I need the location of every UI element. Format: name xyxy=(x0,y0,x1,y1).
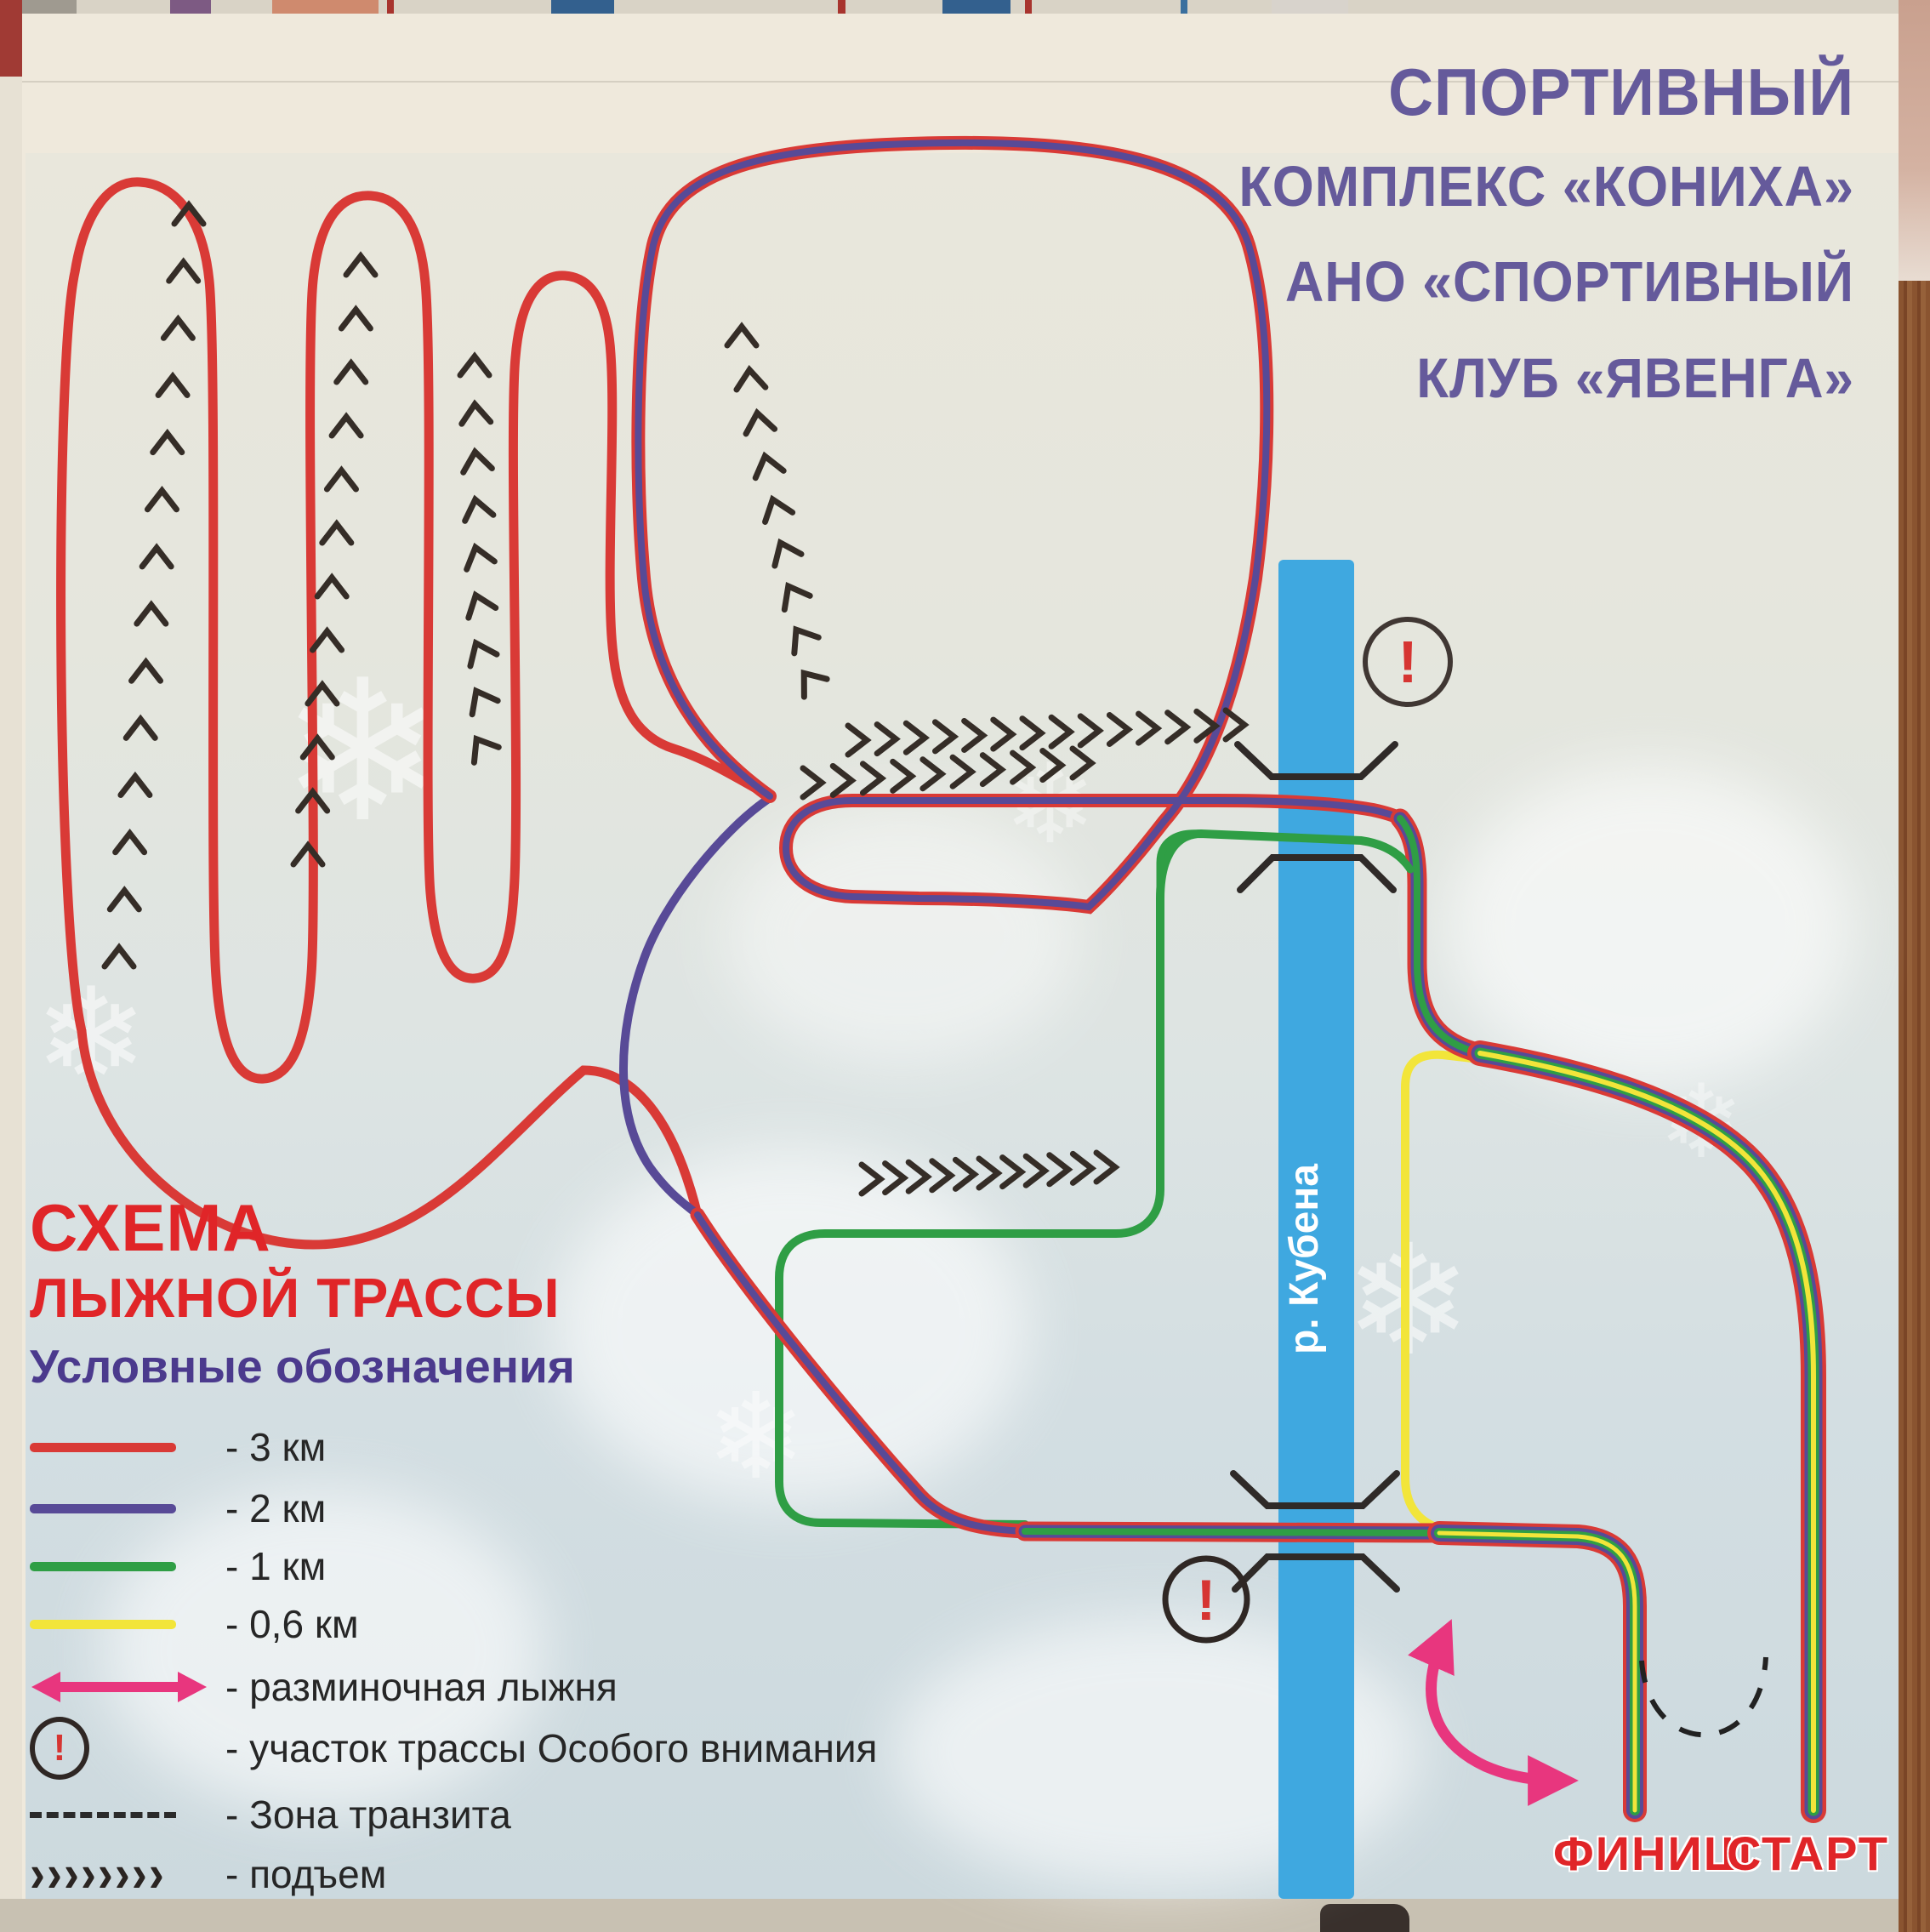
legend-item-attention: ! - участок трассы Особого внимания xyxy=(30,1720,1093,1776)
legend-subtitle: Условные обозначения xyxy=(30,1339,575,1393)
trail-line-icon xyxy=(30,1504,225,1513)
legend-item-2km: - 2 км xyxy=(30,1480,1093,1536)
legend-label: - 2 км xyxy=(225,1485,326,1531)
climb-chevron xyxy=(110,891,139,909)
warning-circle-icon: ! xyxy=(30,1717,225,1780)
climb-chevron xyxy=(1073,749,1091,778)
transit-zone-dashes xyxy=(1642,1657,1766,1735)
climb-chevron xyxy=(784,622,818,653)
legend-item-transit: - Зона транзита xyxy=(30,1787,1093,1843)
climb-chevron xyxy=(1226,710,1244,739)
climb-chevron xyxy=(461,450,492,473)
trail-line-icon xyxy=(30,1562,225,1571)
climb-chevron xyxy=(147,491,176,510)
climb-chevron xyxy=(848,726,867,755)
climb-chevron xyxy=(727,327,756,345)
climb-chevron xyxy=(979,1159,998,1188)
climb-chevron xyxy=(153,434,182,453)
climb-chevron xyxy=(877,725,896,754)
climb-chevron xyxy=(293,846,322,864)
warning-spot-lower: ! xyxy=(1165,1559,1247,1640)
legend-item-1km: - 1 км xyxy=(30,1538,1093,1594)
climb-chevron xyxy=(460,403,490,424)
climb-chevron xyxy=(116,834,145,852)
climb-chevron xyxy=(1096,1153,1115,1182)
climb-chevron xyxy=(1022,719,1041,748)
scheme-title-line1: СХЕМА xyxy=(30,1189,271,1267)
legend-label: - Зона транзита xyxy=(225,1792,511,1838)
legend-item-3km: - 3 км xyxy=(30,1419,1093,1475)
climb-chevron xyxy=(317,578,346,596)
climb-chevron xyxy=(833,766,851,795)
climb-chevron xyxy=(1051,717,1070,746)
legend-label: - 1 км xyxy=(225,1543,326,1589)
trail-2km-diagonal xyxy=(623,800,767,1215)
club-title-line: КЛУБ «ЯВЕНГА» xyxy=(1055,330,1854,425)
climb-chevron xyxy=(132,662,161,681)
legend-item-climb: ›››››››› - подъем xyxy=(30,1846,1093,1902)
club-title-line: АНО «СПОРТИВНЫЙ xyxy=(1055,235,1854,330)
climb-chevron xyxy=(1109,715,1128,744)
climb-chevron xyxy=(935,722,954,751)
climb-chevron xyxy=(932,1161,951,1190)
chevrons-icon: ›››››››› xyxy=(30,1848,225,1901)
climb-chevron xyxy=(463,637,497,666)
ski-trail-map-poster-photo: ❄ ❄ ❄ ❄ ❄ ❄ р. Кубена xyxy=(0,0,1930,1932)
climb-chevron xyxy=(803,768,822,797)
climb-chevron xyxy=(169,262,198,281)
climb-chevron xyxy=(462,544,495,570)
climb-chevron xyxy=(313,631,342,650)
climb-chevron xyxy=(322,524,351,543)
trail-right-bundle xyxy=(1400,818,1480,1053)
climb-chevron xyxy=(953,757,971,786)
river-label: р. Кубена xyxy=(1282,1164,1327,1354)
warning-spot-upper: ! xyxy=(1365,619,1450,704)
legend-label: - участок трассы Особого внимания xyxy=(225,1725,877,1771)
trail-3km-finger-loops xyxy=(61,182,770,1079)
climb-chevron xyxy=(105,948,134,966)
scheme-title-line2: ЛЫЖНОЙ ТРАССЫ xyxy=(30,1266,560,1330)
climb-chevron xyxy=(163,319,192,338)
climb-chevron xyxy=(1003,1158,1022,1187)
club-title: СПОРТИВНЫЙ КОМПЛЕКС «КОНИХА» АНО «СПОРТИ… xyxy=(1004,44,1854,425)
climb-chevron xyxy=(893,761,912,790)
climb-chevron xyxy=(341,310,370,328)
climb-chevron xyxy=(332,417,361,436)
dashed-line-icon xyxy=(30,1812,225,1818)
club-title-line: СПОРТИВНЫЙ xyxy=(1055,44,1854,140)
climb-chevron xyxy=(1043,751,1062,780)
climb-chevron xyxy=(346,256,375,275)
club-title-line: КОМПЛЕКС «КОНИХА» xyxy=(1055,140,1854,235)
legend-label: - 0,6 км xyxy=(225,1601,359,1647)
climb-chevron xyxy=(751,453,783,478)
start-label: СТАРТ xyxy=(1727,1826,1889,1881)
climb-chevron xyxy=(767,537,801,566)
climb-chevron xyxy=(776,579,810,610)
climb-chevron xyxy=(793,664,827,697)
warning-exclamation: ! xyxy=(1398,629,1417,695)
climb-chevron xyxy=(462,590,495,618)
trail-finish-bundle xyxy=(1439,1533,1635,1810)
trail-line-icon xyxy=(30,1443,225,1452)
climb-chevron xyxy=(965,721,983,749)
river-kubena: р. Кубена xyxy=(1278,560,1354,1899)
trail-06km-loop xyxy=(1405,1055,1487,1531)
legend-item-06km: - 0,6 км xyxy=(30,1596,1093,1652)
climb-chevron xyxy=(461,497,493,521)
climb-chevron xyxy=(993,720,1012,749)
legend-label: - разминочная лыжня xyxy=(225,1664,618,1710)
climb-chevron xyxy=(862,1165,880,1194)
climb-chevron xyxy=(126,719,155,738)
climb-chevron xyxy=(464,732,498,763)
climb-chevron xyxy=(464,684,498,714)
double-arrow-icon xyxy=(30,1667,225,1707)
climb-chevron xyxy=(885,1164,904,1193)
climb-chevron xyxy=(735,368,766,390)
trail-line-icon xyxy=(30,1620,225,1629)
climb-chevron xyxy=(906,723,925,752)
climb-chevron xyxy=(955,1160,974,1188)
warning-exclamation: ! xyxy=(1197,1568,1216,1633)
climb-chevron xyxy=(158,376,187,395)
climb-chevron xyxy=(1139,714,1158,743)
climb-chevron xyxy=(460,356,489,375)
climb-chevron xyxy=(923,760,942,789)
climb-chevron xyxy=(1013,753,1032,782)
climb-chevron xyxy=(982,755,1001,784)
climb-chevron xyxy=(1073,1154,1091,1183)
climb-chevron xyxy=(1080,716,1099,745)
climb-chevron xyxy=(337,363,366,382)
climb-chevron xyxy=(759,495,792,522)
climb-chevron xyxy=(1026,1156,1045,1185)
legend-label: - 3 км xyxy=(225,1424,326,1470)
climb-chevron xyxy=(327,470,356,489)
climb-chevron xyxy=(142,548,171,567)
climb-chevron xyxy=(1050,1155,1068,1184)
climb-chevron xyxy=(137,605,166,624)
climb-chevron xyxy=(303,738,332,757)
finish-label: ФИНИШ xyxy=(1553,1826,1753,1881)
climb-chevron xyxy=(743,411,774,434)
warmup-arrow xyxy=(1432,1638,1558,1781)
legend-item-warmup: - разминочная лыжня xyxy=(30,1659,1093,1715)
climb-chevron xyxy=(1168,713,1187,742)
climb-chevron xyxy=(121,777,150,795)
climb-chevron xyxy=(908,1162,927,1191)
legend-label: - подъем xyxy=(225,1851,386,1897)
climb-chevron xyxy=(863,764,881,793)
